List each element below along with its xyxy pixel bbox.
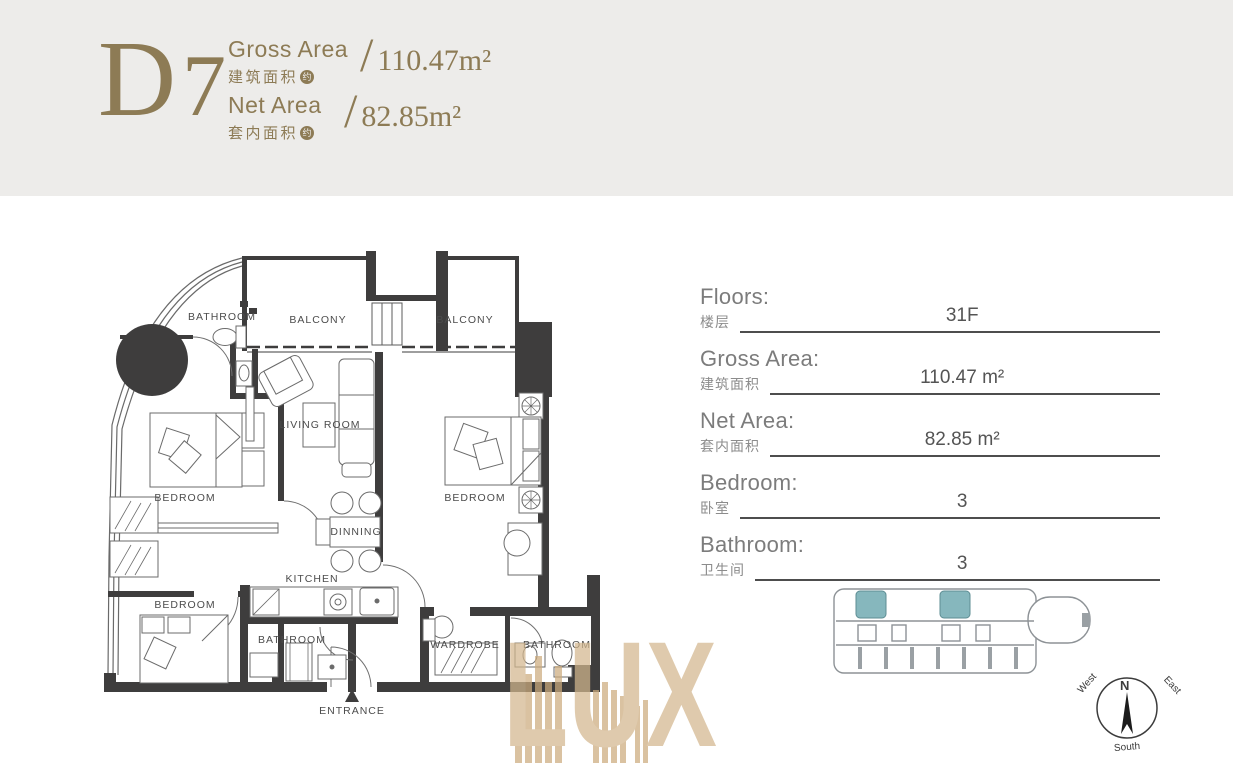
column	[116, 324, 188, 396]
room-label-balcony: BALCONY	[289, 314, 346, 326]
slash-divider: /	[344, 92, 357, 133]
room-label-livingroom: LIVING ROOM	[279, 419, 360, 431]
info-value: 31F	[946, 305, 979, 327]
room-label-entrance: ENTRANCE	[319, 705, 385, 717]
compass-south-label: South	[1114, 741, 1141, 754]
info-label-zh: 卫生间	[700, 560, 755, 581]
net-area-label-block: Net Area 套内面积 约	[228, 92, 322, 143]
net-area-label-en: Net Area	[228, 92, 322, 119]
info-value: 3	[957, 491, 968, 513]
unit-letter: D	[98, 26, 176, 134]
bed	[140, 615, 228, 683]
toilet	[213, 329, 237, 346]
info-value: 110.47 m²	[920, 367, 1004, 389]
room-label-wardrobe: WARDROBE	[430, 639, 499, 651]
room-label-bedroom: BEDROOM	[154, 599, 215, 611]
info-label-zh: 套内面积	[700, 436, 770, 457]
unit-id: D 7	[98, 26, 226, 134]
floorplan-sheet: D 7 Gross Area 建筑面积 约 / 110.47m² Net Are…	[0, 0, 1233, 763]
unit-number: 7	[182, 43, 226, 131]
info-row-floors: Floors: 楼层 31F	[700, 284, 1160, 333]
info-label-en: Floors:	[700, 284, 1160, 310]
header-band: D 7 Gross Area 建筑面积 约 / 110.47m² Net Are…	[0, 0, 1233, 196]
compass-north-label: N	[1120, 678, 1129, 693]
gross-area-value: / 110.47m²	[360, 36, 491, 77]
compass: N West East South	[1070, 666, 1190, 761]
net-area-number: 82.85m²	[361, 101, 461, 133]
floor-plan: BATHROOM BALCONY BALCONY LIVING ROOM BED…	[90, 245, 670, 750]
info-row-net-area: Net Area: 套内面积 82.85 m²	[700, 408, 1160, 457]
room-label-dining: DINNING	[330, 526, 381, 538]
window-box	[372, 303, 402, 345]
balcony-rail	[247, 347, 515, 352]
info-label-zh: 建筑面积	[700, 374, 770, 395]
room-label-kitchen: KITCHEN	[285, 573, 338, 585]
approx-badge-icon: 约	[300, 126, 314, 140]
info-row-gross-area: Gross Area: 建筑面积 110.47 m²	[700, 346, 1160, 395]
room-label-bathroom: BATHROOM	[523, 639, 591, 651]
bed	[445, 393, 543, 575]
compass-needle-icon	[1121, 692, 1133, 734]
info-panel: Floors: 楼层 31F Gross Area: 建筑面积 110.47 m…	[700, 284, 1160, 594]
approx-badge-icon: 约	[300, 70, 314, 84]
info-label-en: Bedroom:	[700, 470, 1160, 496]
underline	[740, 499, 1160, 519]
info-label-en: Bathroom:	[700, 532, 1160, 558]
info-row-bathroom: Bathroom: 卫生间 3	[700, 532, 1160, 581]
info-value: 3	[957, 553, 968, 575]
living-room-furniture	[246, 353, 374, 477]
bathroom-fixtures	[250, 643, 346, 681]
gross-area-label-zh: 建筑面积	[228, 66, 298, 87]
gross-area-number: 110.47m²	[377, 45, 491, 77]
net-area-label-zh: 套内面积	[228, 122, 298, 143]
slash-divider: /	[360, 36, 373, 77]
room-label-bathroom: BATHROOM	[258, 634, 326, 646]
net-area-value: / 82.85m²	[344, 92, 461, 133]
room-label-bathroom: BATHROOM	[188, 311, 256, 323]
info-label-zh: 卧室	[700, 498, 740, 519]
gross-area-label-block: Gross Area 建筑面积 约	[228, 36, 348, 87]
info-value: 82.85 m²	[925, 429, 1000, 451]
closet	[110, 497, 278, 577]
entrance-arrow-icon	[345, 689, 359, 702]
room-label-bedroom: BEDROOM	[154, 492, 215, 504]
info-label-zh: 楼层	[700, 312, 740, 333]
info-row-bedroom: Bedroom: 卧室 3	[700, 470, 1160, 519]
kitchen-counter	[250, 587, 398, 617]
key-plan-drawing	[828, 583, 1110, 679]
room-label-balcony: BALCONY	[436, 314, 493, 326]
gross-area-label-en: Gross Area	[228, 36, 348, 63]
key-plan	[828, 583, 1110, 679]
room-label-bedroom: BEDROOM	[444, 492, 505, 504]
